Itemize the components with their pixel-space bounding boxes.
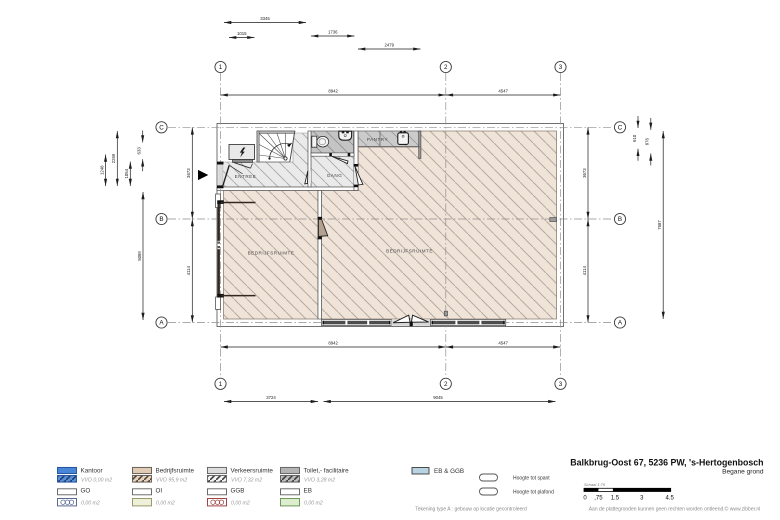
- svg-text:1736: 1736: [328, 30, 338, 35]
- svg-text:Tekening type A : gebouw op lo: Tekening type A : gebouw op locatie geco…: [415, 507, 527, 513]
- svg-text:VVO 95,9 m2: VVO 95,9 m2: [156, 477, 187, 483]
- svg-text:9045: 9045: [433, 395, 443, 400]
- svg-text:4547: 4547: [498, 89, 508, 94]
- svg-text:VVO 3,28 m2: VVO 3,28 m2: [304, 477, 335, 483]
- svg-text:Toilet,- facilitaire: Toilet,- facilitaire: [304, 468, 350, 475]
- svg-text:4547: 4547: [498, 341, 508, 346]
- svg-text:Begane grond: Begane grond: [722, 468, 764, 475]
- svg-text:633: 633: [137, 147, 142, 155]
- svg-text:BEDRIJFSRUIMTE: BEDRIJFSRUIMTE: [386, 248, 433, 253]
- svg-text:1015: 1015: [237, 31, 247, 36]
- svg-text:Hoogte tot plafond: Hoogte tot plafond: [513, 489, 554, 495]
- svg-text:C: C: [618, 125, 623, 132]
- svg-text:OI: OI: [156, 488, 163, 495]
- svg-text:Kantoor: Kantoor: [81, 468, 103, 475]
- svg-text:1: 1: [219, 381, 223, 388]
- svg-text:BEDRIJFSRUIMTE: BEDRIJFSRUIMTE: [248, 250, 295, 255]
- svg-text:1054: 1054: [124, 168, 129, 178]
- svg-text:VVO 7,32 m2: VVO 7,32 m2: [231, 477, 262, 483]
- svg-text:3673: 3673: [582, 168, 587, 178]
- svg-text:Hoogte tot spant: Hoogte tot spant: [513, 475, 550, 481]
- svg-text:GGB: GGB: [231, 488, 245, 495]
- svg-text:C: C: [159, 125, 164, 132]
- svg-text:4114: 4114: [186, 266, 191, 276]
- svg-text:GANG: GANG: [327, 173, 343, 178]
- svg-text:EB: EB: [304, 488, 312, 495]
- svg-text:VVO 0,00 m2: VVO 0,00 m2: [81, 477, 112, 483]
- svg-text:0,00 m2: 0,00 m2: [231, 500, 250, 506]
- svg-text:0,00 m2: 0,00 m2: [156, 500, 175, 506]
- svg-text:2269: 2269: [111, 153, 116, 163]
- svg-text:ENTREE: ENTREE: [235, 174, 257, 179]
- svg-text:3724: 3724: [266, 395, 276, 400]
- svg-text:4114: 4114: [582, 266, 587, 276]
- svg-text:4.5: 4.5: [666, 496, 675, 502]
- svg-text:Bedrijfsruimte: Bedrijfsruimte: [156, 468, 195, 475]
- svg-text:0,00 m2: 0,00 m2: [81, 500, 100, 506]
- svg-text:5089: 5089: [137, 251, 142, 261]
- svg-text:GO: GO: [81, 488, 91, 495]
- svg-text:Aan de plattegronden kunnen ge: Aan de plattegronden kunnen geen rechten…: [589, 506, 761, 513]
- svg-text:,75: ,75: [594, 496, 603, 502]
- svg-text:B: B: [159, 216, 163, 223]
- svg-text:1.5: 1.5: [611, 496, 620, 502]
- svg-text:Schaal 1:75: Schaal 1:75: [584, 482, 606, 487]
- svg-text:7687: 7687: [657, 220, 662, 230]
- svg-text:EB & GGB: EB & GGB: [434, 468, 464, 475]
- svg-text:8942: 8942: [328, 341, 338, 346]
- svg-text:3673: 3673: [186, 168, 191, 178]
- svg-text:1248: 1248: [99, 165, 104, 175]
- svg-text:2479: 2479: [384, 43, 394, 48]
- svg-text:3: 3: [559, 64, 563, 71]
- svg-text:3: 3: [559, 381, 563, 388]
- svg-text:2: 2: [444, 381, 448, 388]
- svg-text:Balkbrug-Oost 67, 5236 PW, 's-: Balkbrug-Oost 67, 5236 PW, 's-Hertogenbo…: [570, 458, 763, 468]
- svg-text:8942: 8942: [328, 89, 338, 94]
- svg-text:B: B: [618, 216, 622, 223]
- svg-text:2: 2: [444, 64, 448, 71]
- svg-text:1: 1: [219, 64, 223, 71]
- svg-text:610: 610: [632, 134, 637, 142]
- svg-text:3345: 3345: [260, 16, 270, 21]
- svg-text:0,00 m2: 0,00 m2: [304, 500, 323, 506]
- svg-text:PANTRY: PANTRY: [367, 137, 388, 142]
- svg-text:876: 876: [645, 137, 650, 145]
- svg-text:Verkeersruimte: Verkeersruimte: [231, 468, 274, 475]
